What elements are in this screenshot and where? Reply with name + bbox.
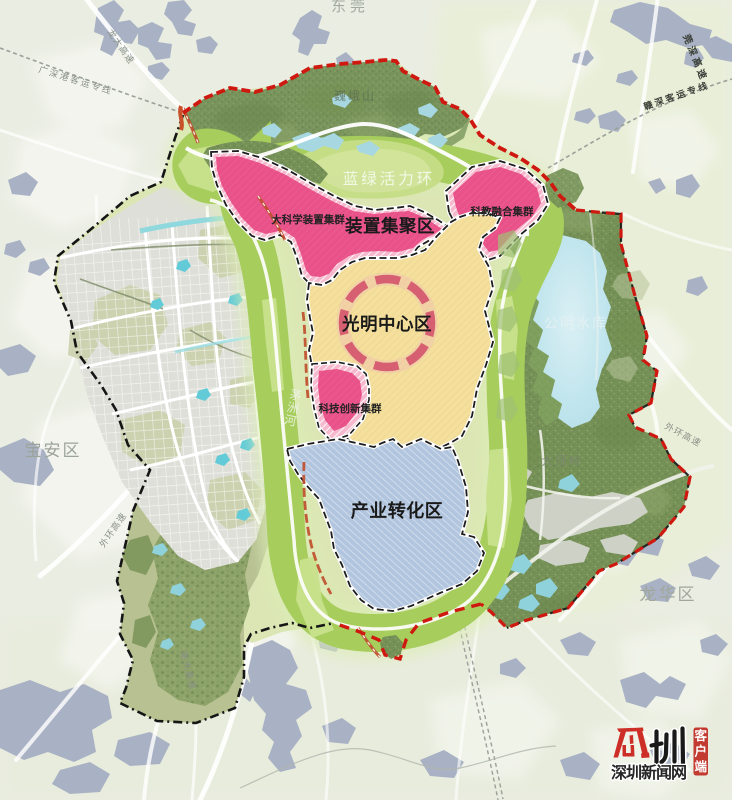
svg-text:大科学装置集群: 大科学装置集群	[271, 213, 345, 226]
svg-text:产业转化区: 产业转化区	[351, 500, 444, 521]
svg-text:科教融合集群: 科教融合集群	[471, 205, 534, 218]
svg-text:大顶岭: 大顶岭	[541, 454, 583, 468]
svg-text:公明水库: 公明水库	[544, 315, 608, 331]
svg-text:蓝绿活力环: 蓝绿活力环	[343, 170, 436, 188]
svg-text:光明中心区: 光明中心区	[341, 314, 432, 334]
svg-text:宝安区: 宝安区	[25, 441, 82, 460]
svg-text:客户端: 客户端	[694, 728, 708, 774]
svg-text:装置集聚区: 装置集聚区	[344, 216, 435, 236]
svg-text:巍峨山: 巍峨山	[334, 89, 376, 103]
svg-text:东莞: 东莞	[331, 0, 369, 15]
svg-text:深圳新闻网: 深圳新闻网	[611, 763, 686, 782]
svg-text:科技创新集群: 科技创新集群	[319, 402, 382, 415]
svg-text:龙华区: 龙华区	[640, 585, 697, 604]
